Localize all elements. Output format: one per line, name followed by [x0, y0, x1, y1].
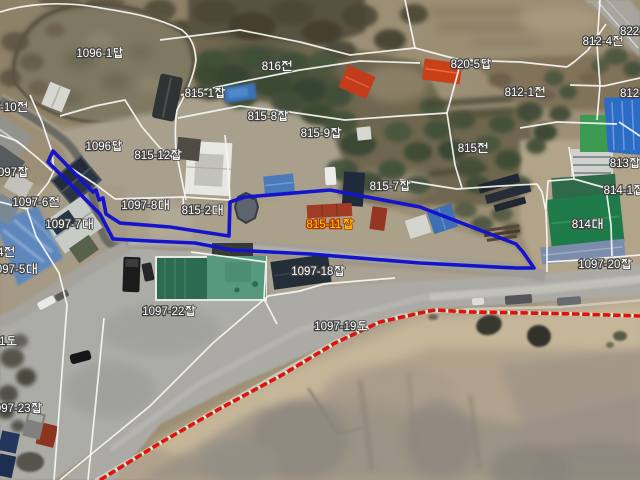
svg-text:4: 4 — [0, 247, 4, 259]
svg-text:1097-18: 1097-18 — [291, 266, 333, 278]
svg-text:1097-8: 1097-8 — [121, 200, 157, 212]
svg-text:822: 822 — [620, 26, 639, 38]
svg-text:1096: 1096 — [86, 141, 112, 153]
svg-text:1096-1: 1096-1 — [76, 48, 112, 60]
svg-text:815-12: 815-12 — [134, 150, 170, 162]
svg-text:1097-5: 1097-5 — [0, 264, 25, 276]
svg-text:815-11: 815-11 — [306, 219, 341, 231]
svg-text:820-5: 820-5 — [451, 59, 480, 71]
svg-text:815-9: 815-9 — [301, 128, 330, 140]
svg-text:1: 1 — [0, 336, 6, 348]
svg-text:812-4: 812-4 — [583, 36, 613, 48]
svg-text:813: 813 — [610, 158, 629, 170]
svg-text:814-1: 814-1 — [604, 185, 633, 197]
svg-text:1097-10: 1097-10 — [0, 102, 17, 114]
svg-text:1097-23: 1097-23 — [0, 403, 31, 415]
svg-text:815-8: 815-8 — [248, 111, 277, 123]
svg-text:812: 812 — [620, 88, 639, 100]
svg-text:1097-22: 1097-22 — [142, 306, 184, 318]
svg-text:815-7: 815-7 — [370, 181, 399, 193]
svg-text:815: 815 — [458, 143, 477, 155]
svg-text:1097-19: 1097-19 — [314, 321, 356, 333]
svg-text:1097-6: 1097-6 — [12, 197, 48, 209]
svg-text:1097-7: 1097-7 — [45, 219, 81, 231]
svg-text:1097: 1097 — [0, 167, 17, 179]
svg-text:812-1: 812-1 — [505, 87, 534, 99]
svg-text:815-1: 815-1 — [185, 88, 214, 100]
svg-text:815-2: 815-2 — [182, 205, 211, 217]
svg-text:816: 816 — [262, 61, 281, 73]
svg-text:814: 814 — [572, 219, 592, 231]
svg-text:1097-20: 1097-20 — [578, 259, 620, 271]
